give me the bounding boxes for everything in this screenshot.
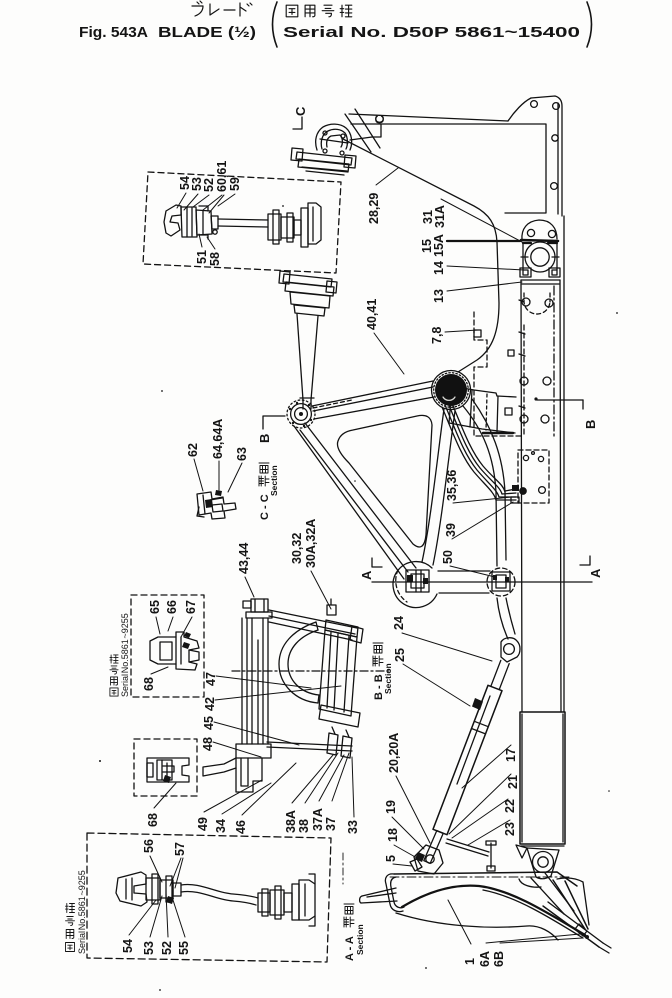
svg-text:25: 25: [393, 648, 407, 662]
svg-text:Fig. 543A: Fig. 543A: [79, 24, 148, 41]
svg-text:24: 24: [392, 616, 406, 630]
svg-text:30A,32A: 30A,32A: [304, 519, 318, 568]
svg-text:Section: Section: [383, 663, 393, 694]
svg-text:B: B: [257, 434, 272, 443]
svg-text:17: 17: [504, 748, 518, 762]
svg-text:31A: 31A: [433, 205, 447, 228]
svg-text:55: 55: [177, 941, 191, 955]
svg-text:58: 58: [208, 252, 222, 266]
svg-text:62: 62: [186, 443, 200, 457]
svg-text:37A: 37A: [311, 808, 325, 831]
svg-text:35,36: 35,36: [445, 470, 459, 501]
svg-text:42: 42: [203, 697, 217, 711]
svg-text:Section: Section: [269, 465, 279, 496]
svg-text:20,20A: 20,20A: [387, 733, 401, 773]
svg-text:C: C: [372, 114, 387, 124]
svg-text:B: B: [583, 420, 598, 429]
svg-text:56: 56: [142, 839, 156, 853]
svg-text:52: 52: [202, 178, 216, 192]
svg-text:66: 66: [165, 600, 179, 614]
svg-text:65: 65: [148, 600, 162, 614]
svg-text:46: 46: [234, 820, 248, 834]
svg-text:Serial No. D50P 5861~15400: Serial No. D50P 5861~15400: [283, 24, 580, 41]
svg-text:A: A: [359, 570, 374, 580]
svg-text:33: 33: [346, 820, 360, 834]
svg-text:68: 68: [142, 677, 156, 691]
svg-text:6B: 6B: [492, 951, 506, 967]
svg-text:5: 5: [384, 855, 398, 862]
svg-text:38A: 38A: [284, 810, 298, 833]
svg-text:51: 51: [195, 250, 209, 264]
svg-text:45: 45: [202, 716, 216, 730]
svg-text:Serial No.5861 ~9255: Serial No.5861 ~9255: [120, 613, 130, 697]
svg-text:50: 50: [441, 550, 455, 564]
svg-text:Serial No.5861 ~9255: Serial No.5861 ~9255: [77, 870, 87, 954]
svg-text:67: 67: [184, 600, 198, 614]
svg-text:Section: Section: [355, 924, 365, 955]
svg-text:18: 18: [386, 828, 400, 842]
svg-text:64,64A: 64,64A: [211, 419, 225, 459]
svg-text:60,61: 60,61: [215, 161, 229, 192]
svg-text:39: 39: [444, 523, 458, 537]
svg-text:28,29: 28,29: [367, 193, 381, 224]
svg-text:48: 48: [201, 737, 215, 751]
svg-text:40,41: 40,41: [365, 299, 379, 330]
svg-text:C - C: C - C: [259, 494, 271, 520]
svg-text:1: 1: [463, 958, 477, 965]
svg-text:19: 19: [384, 800, 398, 814]
svg-text:52: 52: [160, 941, 174, 955]
svg-text:7,8: 7,8: [430, 327, 444, 344]
svg-text:49: 49: [196, 817, 210, 831]
svg-text:54: 54: [121, 939, 135, 953]
svg-text:BLADE (½): BLADE (½): [158, 24, 256, 41]
svg-text:34: 34: [214, 819, 228, 833]
svg-text:43,44: 43,44: [237, 543, 251, 574]
svg-text:59: 59: [228, 177, 242, 191]
svg-text:57: 57: [173, 842, 187, 856]
svg-text:63: 63: [235, 447, 249, 461]
svg-text:A: A: [588, 568, 603, 578]
svg-text:15A: 15A: [432, 234, 446, 257]
svg-text:23: 23: [503, 822, 517, 836]
svg-text:6A: 6A: [478, 951, 492, 967]
svg-text:37: 37: [324, 817, 338, 831]
svg-text:C: C: [293, 106, 308, 116]
svg-text:53: 53: [142, 941, 156, 955]
svg-text:30,32: 30,32: [290, 533, 304, 564]
svg-text:13: 13: [432, 289, 446, 303]
svg-text:14: 14: [432, 261, 446, 275]
svg-text:38: 38: [297, 819, 311, 833]
svg-text:47: 47: [204, 672, 218, 686]
svg-text:68: 68: [146, 813, 160, 827]
